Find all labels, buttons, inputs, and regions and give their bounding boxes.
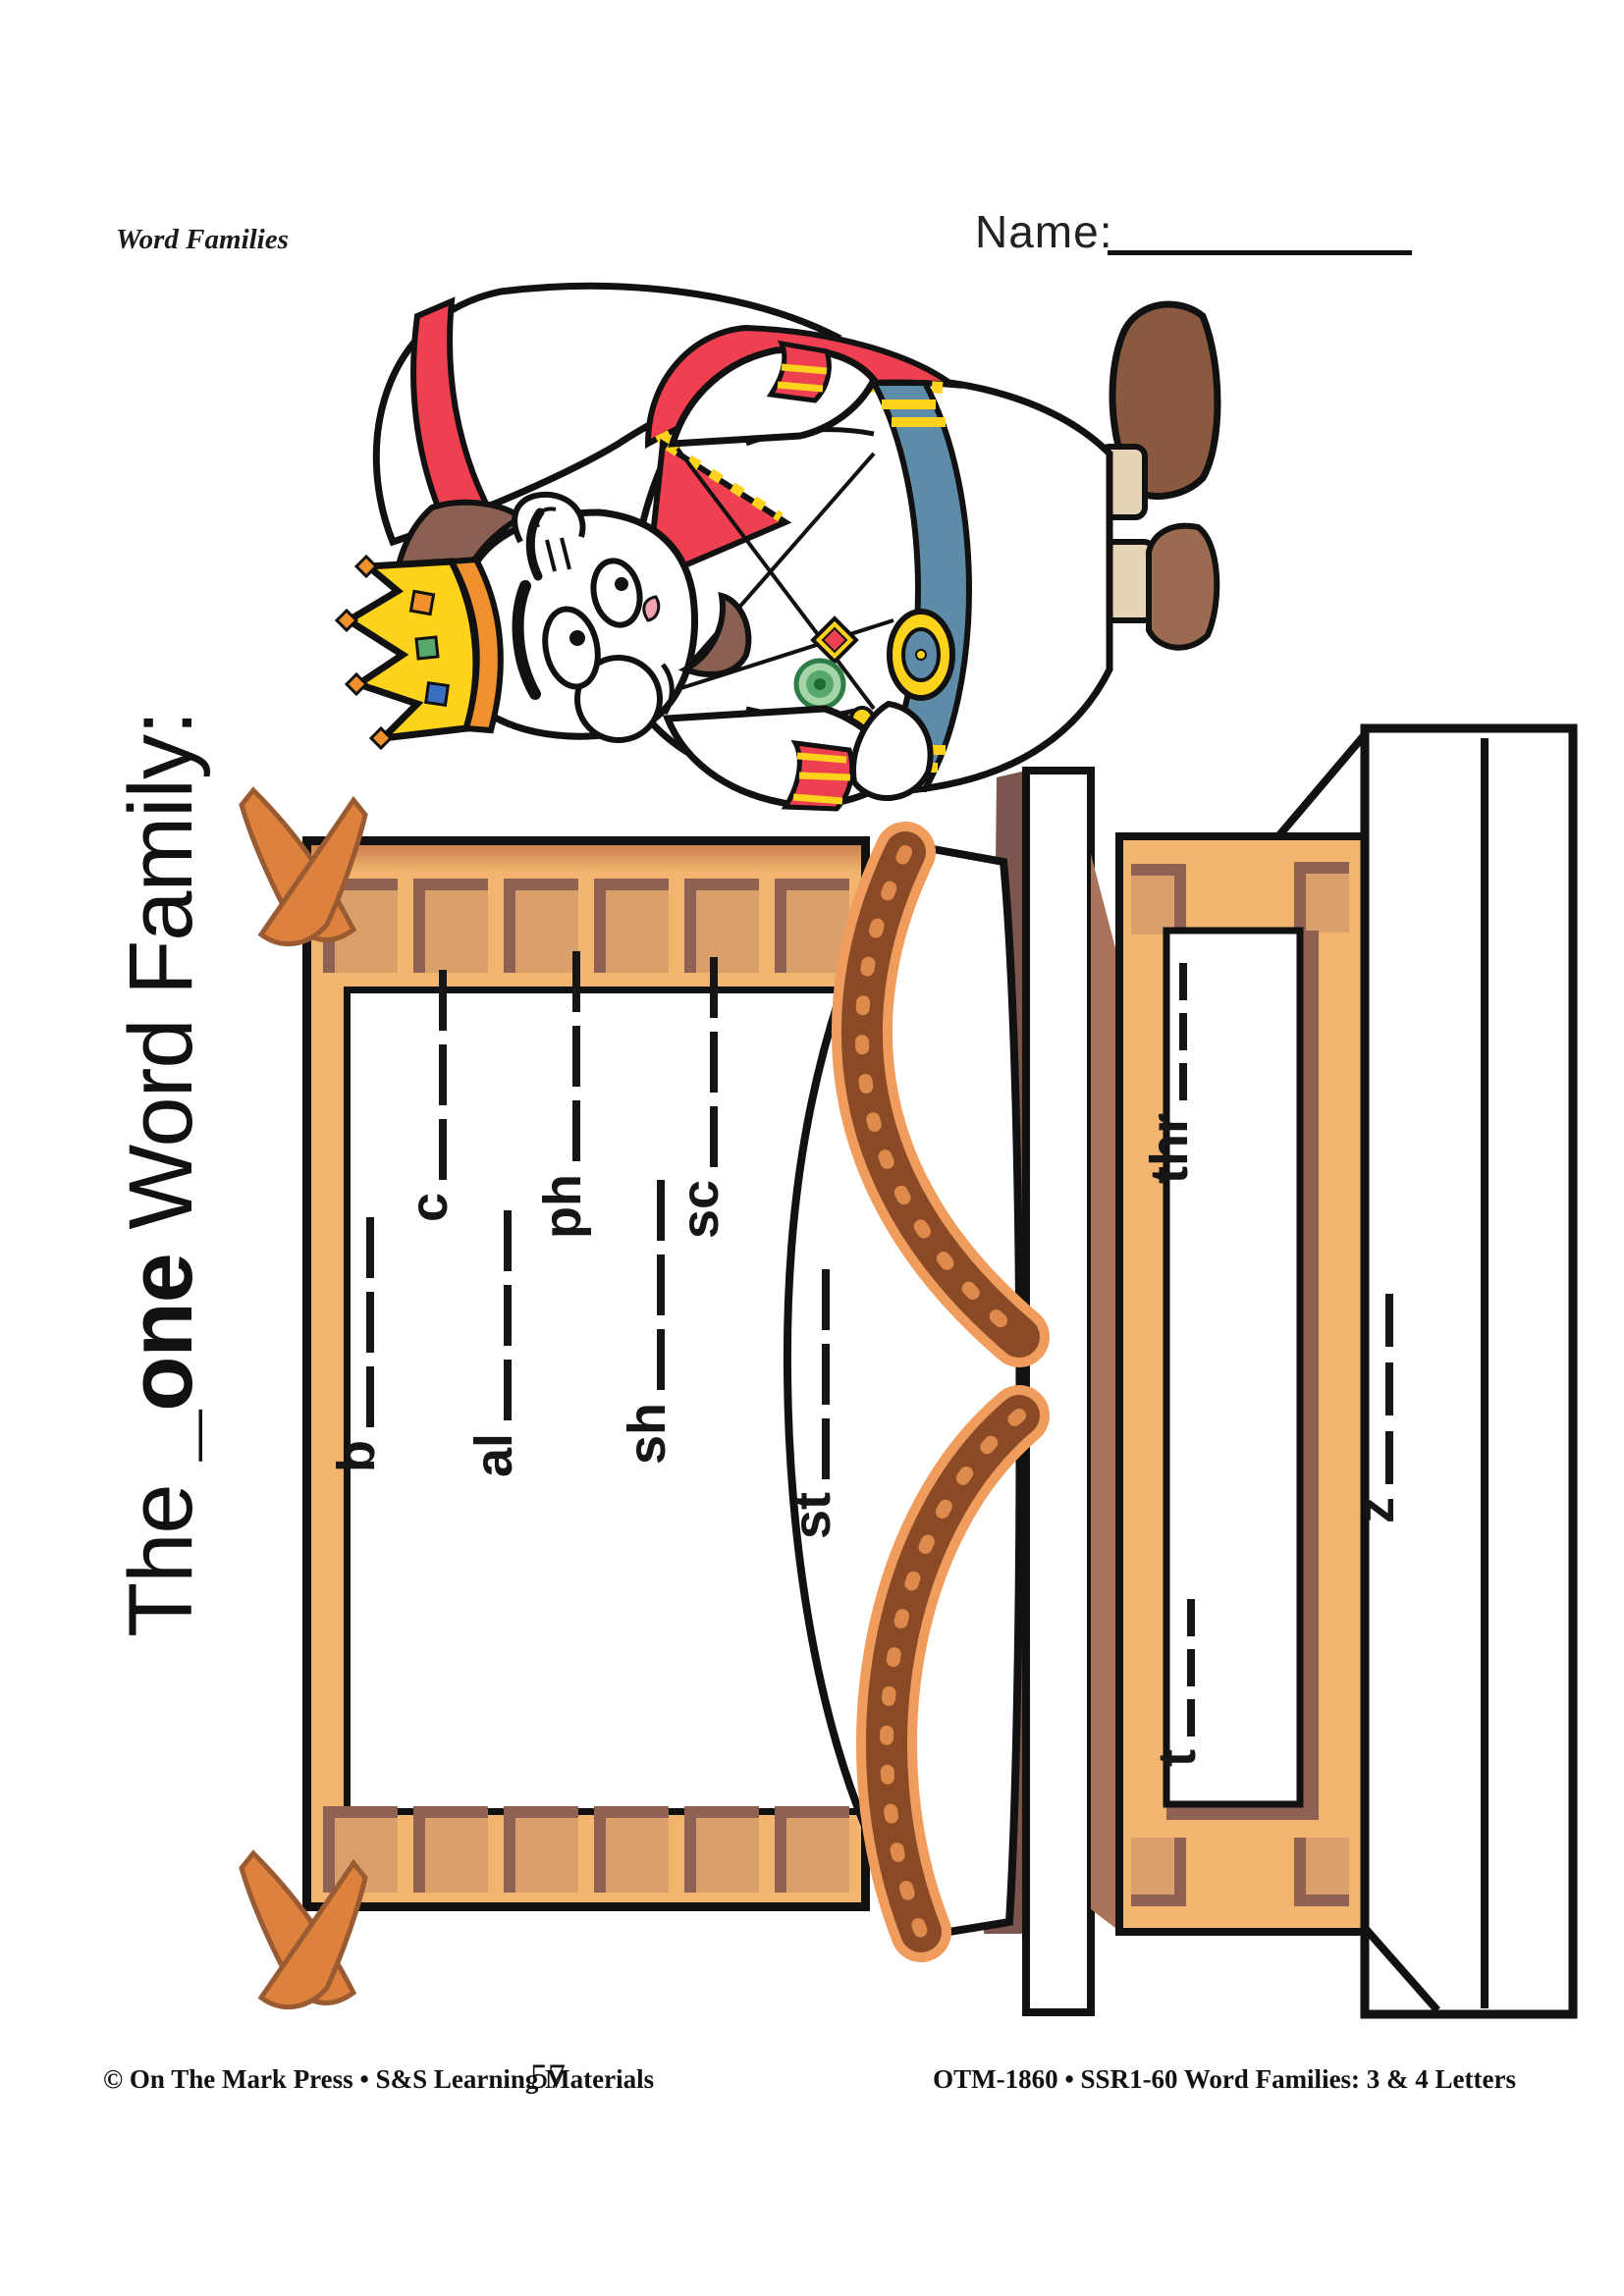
- word-blank-st[interactable]: st: [778, 1269, 846, 1539]
- page-number: 57: [530, 2056, 566, 2097]
- title-suffix: Word Family:: [111, 711, 211, 1254]
- answer-blank-line[interactable]: [439, 970, 447, 1180]
- fleur-ornament-icon: [234, 1824, 371, 2020]
- wood-panel: [684, 1806, 759, 1893]
- prompt-prefix: c: [400, 1193, 459, 1222]
- name-label: Name:: [975, 209, 1112, 254]
- prompt-prefix: t: [1148, 1749, 1207, 1767]
- prompt-prefix: st: [783, 1492, 841, 1539]
- prompt-prefix: z: [1346, 1497, 1405, 1523]
- prompt-prefix: al: [464, 1433, 523, 1477]
- title-family-blank: _one: [111, 1254, 211, 1461]
- word-blank-thr[interactable]: thr: [1135, 963, 1204, 1184]
- category-label: Word Families: [116, 224, 289, 256]
- answer-blank-line[interactable]: [657, 1180, 665, 1390]
- word-blank-t[interactable]: t: [1143, 1599, 1212, 1767]
- fleur-ornament-icon: [234, 761, 371, 957]
- name-input-line[interactable]: [1108, 250, 1412, 255]
- word-blank-b[interactable]: b: [322, 1217, 391, 1472]
- wood-panel: [413, 879, 488, 973]
- word-blank-z[interactable]: z: [1341, 1294, 1410, 1523]
- throne-illustration: [756, 717, 1591, 2037]
- wood-panel: [594, 879, 669, 973]
- wood-panel: [413, 1806, 488, 1893]
- word-blank-c[interactable]: c: [395, 970, 463, 1222]
- crown-icon: [349, 561, 476, 738]
- word-blank-al[interactable]: al: [460, 1210, 528, 1477]
- answer-blank-line[interactable]: [366, 1217, 374, 1427]
- product-code: OTM-1860 • SSR1-60 Word Families: 3 & 4 …: [933, 2064, 1516, 2095]
- word-blank-sc[interactable]: sc: [666, 957, 734, 1239]
- wood-panel: [504, 1806, 578, 1893]
- answer-blank-line[interactable]: [822, 1269, 830, 1479]
- answer-blank-line[interactable]: [1187, 1599, 1195, 1736]
- answer-blank-line[interactable]: [1179, 963, 1187, 1100]
- prompt-prefix: thr: [1140, 1113, 1199, 1184]
- king-shoe: [1149, 526, 1217, 648]
- answer-blank-line[interactable]: [572, 951, 580, 1161]
- answer-blank-line[interactable]: [710, 957, 718, 1167]
- king-illustration: [324, 267, 1227, 866]
- answer-blank-line[interactable]: [504, 1210, 512, 1420]
- copyright-text: © On The Mark Press • S&S Learning Mater…: [103, 2064, 654, 2095]
- word-blank-ph[interactable]: ph: [528, 951, 597, 1239]
- answer-blank-line[interactable]: [1385, 1294, 1393, 1484]
- wood-panel: [594, 1806, 669, 1893]
- prompt-prefix: sh: [618, 1403, 677, 1465]
- prompt-prefix: ph: [533, 1174, 592, 1239]
- prompt-prefix: sc: [671, 1180, 730, 1239]
- prompt-prefix: b: [327, 1440, 386, 1472]
- page-title: The _one Word Family:: [110, 711, 213, 1637]
- worksheet-page: Word Families Name: The _one Word Family…: [0, 0, 1624, 2296]
- title-prefix: The: [111, 1461, 211, 1637]
